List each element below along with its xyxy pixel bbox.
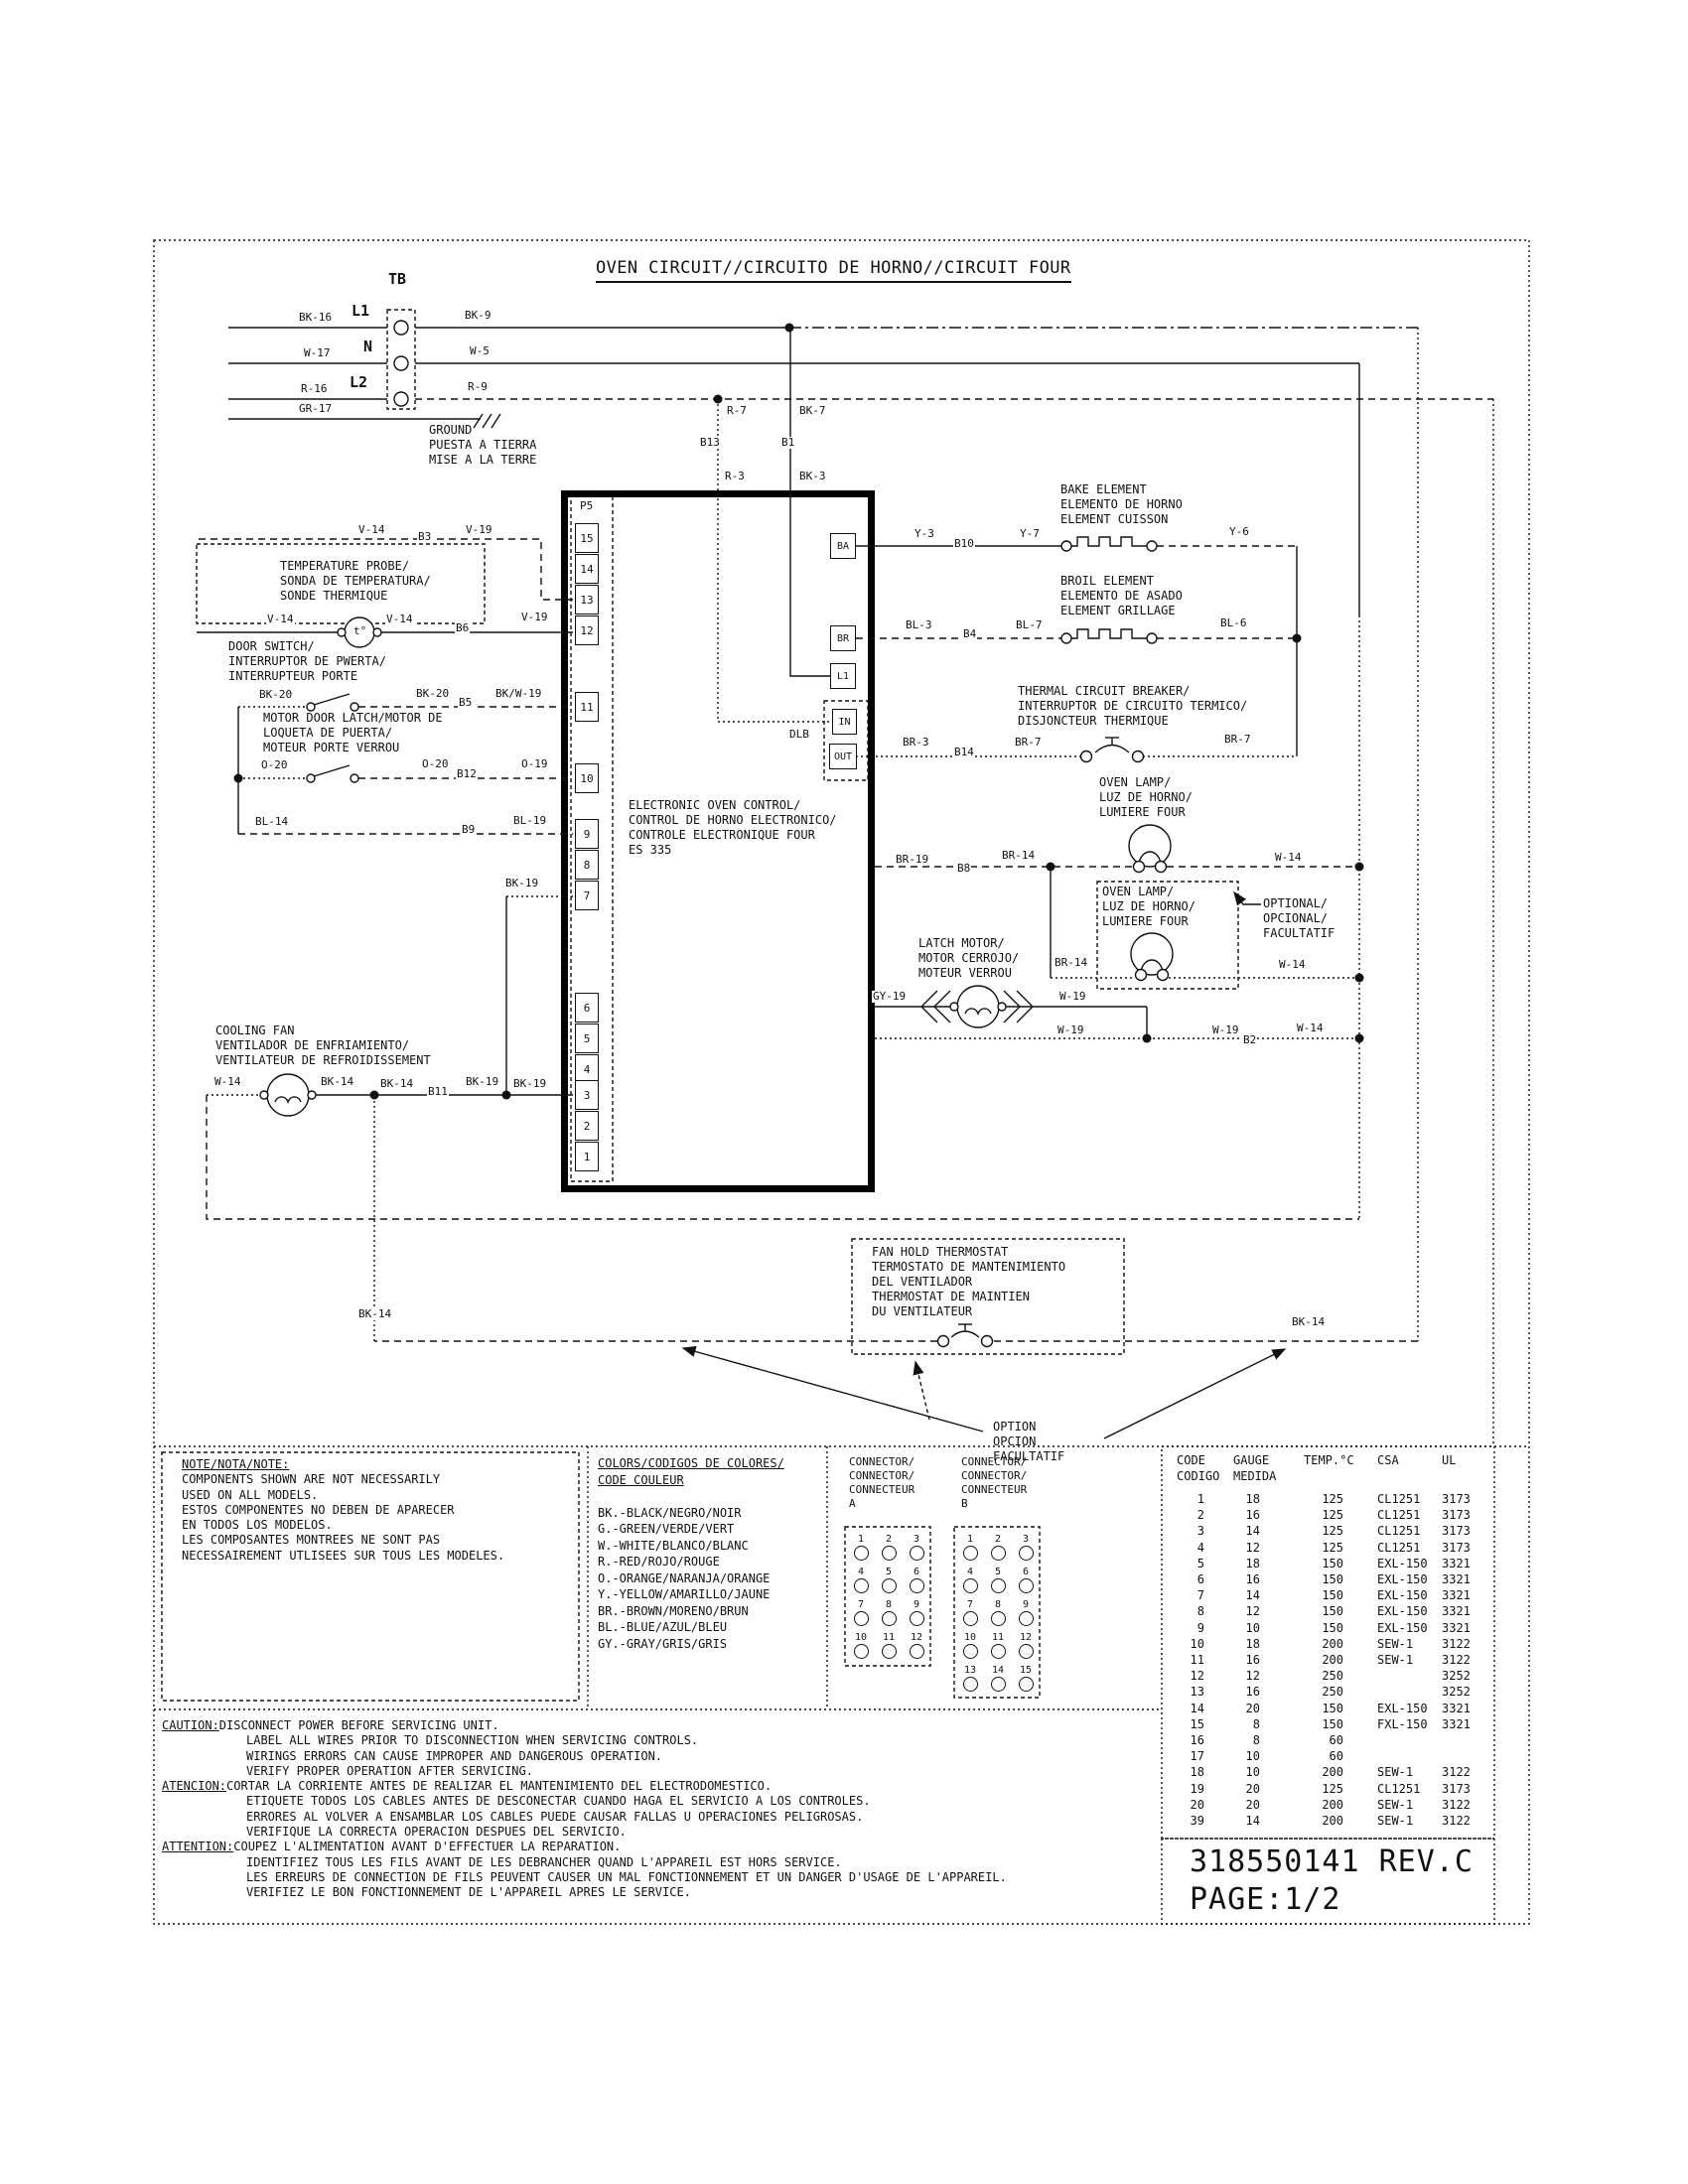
wire-label: W-14 [1278,959,1307,971]
wire-label: B11 [427,1086,449,1098]
component-label-line: MOTEUR VERROU [918,966,1019,981]
wire-label: B4 [962,628,977,640]
wire-label: B10 [953,538,975,550]
component-label-line: VENTILATEUR DE REFROIDISSEMENT [215,1053,431,1068]
wire-label: BK-20 [415,688,450,700]
board-pin-12: 12 [575,615,599,645]
wire-label: B12 [456,768,478,780]
board-pin-5: 5 [575,1024,599,1053]
wire-label: BL-19 [512,815,547,827]
board-terminal-in: IN [832,709,857,735]
wire-label: W-19 [1058,991,1087,1003]
board-pin-9: 9 [575,819,599,849]
wire-label: BR-14 [1054,957,1088,969]
component-label-line: ELEMENT CUISSON [1060,512,1183,527]
wire-label: B1 [780,437,795,449]
wire-label: BK-7 [798,405,827,417]
component-label-line: LUZ DE HORNO/ [1099,790,1193,805]
wire-label: R-16 [300,383,329,395]
terminal-label-n: N [363,338,372,355]
component-label-optional-callout: OPTIONAL/OPCIONAL/FACULTATIF [1263,896,1335,941]
component-label-line: INTERRUPTOR DE PWERTA/ [228,654,386,669]
component-label-line: ELECTRONIC OVEN CONTROL/ [629,798,837,813]
component-label-line: BAKE ELEMENT [1060,482,1183,497]
wire-label: BR-7 [1223,734,1252,746]
wire-label: BK-20 [258,689,293,701]
terminal-label-l1: L1 [352,302,369,320]
wire-label: R-9 [467,381,489,393]
component-label-line: SONDE THERMIQUE [280,589,431,604]
wire-label: B13 [699,437,721,449]
component-label-line: DU VENTILATEUR [872,1304,1065,1319]
board-terminal-out: OUT [829,744,857,769]
component-label-line: ELEMENTO DE ASADO [1060,589,1183,604]
component-label-line: CONTROL DE HORNO ELECTRONICO/ [629,813,837,828]
wire-label: O-19 [520,758,549,770]
component-label-line: SONDA DE TEMPERATURA/ [280,574,431,589]
board-pin-11: 11 [575,692,599,722]
wire-label: Y-7 [1019,528,1041,540]
component-label-thermal-circuit-breaker: THERMAL CIRCUIT BREAKER/INTERRUPTOR DE C… [1018,684,1247,729]
component-label-line: LUMIERE FOUR [1099,805,1193,820]
component-label-line: OPTION [993,1420,1064,1434]
wire-label: B3 [417,531,432,543]
board-pin-14: 14 [575,554,599,584]
component-label-line: FACULTATIF [993,1449,1064,1464]
wire-label: B9 [461,824,476,836]
component-label-line: GROUND [429,423,536,438]
component-label-line: THERMOSTAT DE MAINTIEN [872,1290,1065,1304]
component-label-line: DOOR SWITCH/ [228,639,386,654]
wire-label: BK/W-19 [494,688,542,700]
component-label-line: LOQUETA DE PUERTA/ [263,726,443,741]
wire-label: O-20 [260,759,289,771]
wire-label: BL-14 [254,816,289,828]
wire-label: B5 [458,697,473,709]
wire-label: BK-14 [320,1076,354,1088]
labels-layer: TBBK-16BK-9W-17W-5R-16R-9GR-17R-7B13R-3B… [0,0,1688,2184]
component-label-line: CONTROLE ELECTRONIQUE FOUR [629,828,837,843]
component-label-line: LUZ DE HORNO/ [1102,899,1196,914]
component-label-line: FACULTATIF [1263,926,1335,941]
wire-label: BK-14 [357,1308,392,1320]
component-label-electronic-oven-control: ELECTRONIC OVEN CONTROL/CONTROL DE HORNO… [629,798,837,858]
wire-label: W-14 [213,1076,242,1088]
wire-label: BK-19 [465,1076,499,1088]
component-label-line: VENTILADOR DE ENFRIAMIENTO/ [215,1038,431,1053]
component-label-cooling-fan: COOLING FANVENTILADOR DE ENFRIAMIENTO/VE… [215,1024,431,1068]
component-label-line: LATCH MOTOR/ [918,936,1019,951]
board-pin-1: 1 [575,1142,599,1171]
board-pin-7: 7 [575,881,599,910]
wire-label: BK-19 [504,878,539,889]
component-label-line: COOLING FAN [215,1024,431,1038]
wire-label: B2 [1242,1034,1257,1046]
wire-label: BR-14 [1001,850,1036,862]
component-label-option-callout: OPTIONOPCIONFACULTATIF [993,1420,1064,1464]
wire-label: BR-3 [902,737,930,749]
wire-label: V-14 [385,614,414,625]
board-pin-8: 8 [575,850,599,880]
component-label-line: BROIL ELEMENT [1060,574,1183,589]
component-label-fan-hold-thermostat: FAN HOLD THERMOSTATTERMOSTATO DE MANTENI… [872,1245,1065,1319]
board-pin-2: 2 [575,1111,599,1141]
wire-label: B6 [455,622,470,634]
board-pin-15: 15 [575,523,599,553]
component-label-line: INTERRUPTEUR PORTE [228,669,386,684]
wire-label: V-19 [520,612,549,623]
component-label-temperature-probe: TEMPERATURE PROBE/SONDA DE TEMPERATURA/S… [280,559,431,604]
component-label-ground: GROUNDPUESTA A TIERRAMISE A LA TERRE [429,423,536,468]
component-label-line: INTERRUPTOR DE CIRCUITO TERMICO/ [1018,699,1247,714]
wire-label: BR-19 [895,854,929,866]
wire-label: B14 [953,747,975,758]
component-label-line: TEMPERATURE PROBE/ [280,559,431,574]
component-label-line: THERMAL CIRCUIT BREAKER/ [1018,684,1247,699]
component-label-line: OVEN LAMP/ [1099,775,1193,790]
board-pin-6: 6 [575,993,599,1023]
wire-label: BL-6 [1219,617,1248,629]
component-label-line: DEL VENTILADOR [872,1275,1065,1290]
component-label-line: TERMOSTATO DE MANTENIMIENTO [872,1260,1065,1275]
component-label-line: ES 335 [629,843,837,858]
wire-label: V-19 [465,524,493,536]
component-label-line: MISE A LA TERRE [429,453,536,468]
board-terminal-br: BR [830,625,856,651]
wire-label: W-14 [1274,852,1303,864]
board-pin-3: 3 [575,1080,599,1110]
wire-label: t° [352,625,367,637]
component-label-line: PUESTA A TIERRA [429,438,536,453]
wire-label: V-14 [357,524,386,536]
component-label-line: OPCIONAL/ [1263,911,1335,926]
component-label-motor-door-latch: MOTOR DOOR LATCH/MOTOR DELOQUETA DE PUER… [263,711,443,755]
component-label-line: MOTOR CERROJO/ [918,951,1019,966]
board-terminal-l1: L1 [830,663,856,689]
wire-label: GR-17 [298,403,333,415]
wire-label: BK-14 [379,1078,414,1090]
board-pin-10: 10 [575,763,599,793]
wire-label: BK-16 [298,312,333,324]
wire-label: O-20 [421,758,450,770]
dlb-label: DLB [788,729,810,741]
component-label-line: OVEN LAMP/ [1102,885,1196,899]
wire-label: BK-19 [512,1078,547,1090]
component-label-line: DISJONCTEUR THERMIQUE [1018,714,1247,729]
component-label-line: OPTIONAL/ [1263,896,1335,911]
component-label-oven-lamp-optional: OVEN LAMP/LUZ DE HORNO/LUMIERE FOUR [1102,885,1196,929]
component-label-line: OPCION [993,1434,1064,1449]
board-pin-13: 13 [575,585,599,614]
component-label-bake-element: BAKE ELEMENTELEMENTO DE HORNOELEMENT CUI… [1060,482,1183,527]
component-label-line: ELEMENT GRILLAGE [1060,604,1183,618]
wire-label: W-19 [1056,1024,1085,1036]
wire-label: BL-3 [905,619,933,631]
component-label-broil-element: BROIL ELEMENTELEMENTO DE ASADOELEMENT GR… [1060,574,1183,618]
wire-label: BL-7 [1015,619,1044,631]
wire-label: Y-6 [1228,526,1250,538]
wire-label: GY-19 [872,991,907,1003]
wire-label: BR-7 [1014,737,1043,749]
component-label-door-switch: DOOR SWITCH/INTERRUPTOR DE PWERTA/INTERR… [228,639,386,684]
component-label-line: MOTOR DOOR LATCH/MOTOR DE [263,711,443,726]
component-label-line: MOTEUR PORTE VERROU [263,741,443,755]
wire-label: BK-14 [1291,1316,1326,1328]
wire-label: W-14 [1296,1023,1325,1034]
wire-label: B8 [956,863,971,875]
wire-label: BK-9 [464,310,492,322]
wire-label: BK-3 [798,471,827,482]
terminal-label-l2: L2 [350,373,367,391]
wire-label: W-17 [303,347,332,359]
wire-label: W-5 [469,345,491,357]
wire-label: W-19 [1211,1024,1240,1036]
component-label-line: FAN HOLD THERMOSTAT [872,1245,1065,1260]
wire-label: R-3 [724,471,746,482]
wire-label: Y-3 [914,528,935,540]
board-terminal-ba: BA [830,533,856,559]
wire-label: R-7 [726,405,748,417]
component-label-oven-lamp: OVEN LAMP/LUZ DE HORNO/LUMIERE FOUR [1099,775,1193,820]
wire-label: V-14 [266,614,295,625]
wiring-diagram-page: OVEN CIRCUIT//CIRCUITO DE HORNO//CIRCUIT… [0,0,1688,2184]
component-label-line: ELEMENTO DE HORNO [1060,497,1183,512]
p5-connector-label: P5 [579,500,594,512]
component-label-line: LUMIERE FOUR [1102,914,1196,929]
wire-label: TB [388,270,406,288]
component-label-latch-motor: LATCH MOTOR/MOTOR CERROJO/MOTEUR VERROU [918,936,1019,981]
